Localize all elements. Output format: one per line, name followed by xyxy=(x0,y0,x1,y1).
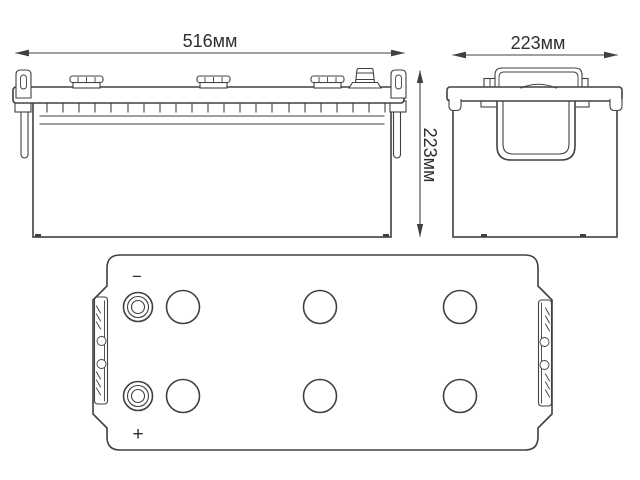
depth-dimension: 223мм xyxy=(452,33,618,58)
battery-lid-side xyxy=(447,87,622,101)
arrow-right-icon xyxy=(604,52,618,59)
arrow-down-icon xyxy=(417,224,423,237)
handle-rod-left xyxy=(21,108,28,158)
top-view: − + xyxy=(93,255,552,450)
battery-technical-drawing: 516мм xyxy=(0,0,640,480)
side-view: 223мм xyxy=(447,33,622,237)
handle-pin xyxy=(540,338,549,347)
vent-cover-strip xyxy=(70,76,103,88)
arrow-right-icon xyxy=(391,50,405,57)
height-dimension: 223мм xyxy=(417,70,440,237)
handle-pin xyxy=(97,337,106,346)
vent-cover-strip xyxy=(197,76,230,88)
vent-cover-strip xyxy=(311,76,344,88)
lid-ear-left xyxy=(449,99,461,111)
carry-handle-side xyxy=(497,100,575,160)
handle-pin xyxy=(540,361,549,370)
handle-rod-right xyxy=(394,108,401,158)
battery-case-front xyxy=(33,100,391,237)
battery-lid-front xyxy=(13,87,404,103)
arrow-left-icon xyxy=(15,50,29,57)
height-dimension-label: 223мм xyxy=(420,128,440,183)
side-depth-dimension-label: 223мм xyxy=(511,33,566,53)
handle-pin xyxy=(97,360,106,369)
terminal-post xyxy=(349,69,381,89)
arrow-left-icon xyxy=(452,52,466,59)
negative-terminal-label: − xyxy=(132,267,142,286)
front-view: 516мм xyxy=(13,31,440,237)
front-width-dimension-label: 516мм xyxy=(183,31,238,51)
carry-handle-left xyxy=(95,297,108,404)
positive-terminal-label: + xyxy=(132,424,143,445)
arrow-up-icon xyxy=(417,70,423,83)
handle-bracket-right xyxy=(391,70,406,98)
handle-bracket-left xyxy=(16,70,31,98)
carry-handle-right xyxy=(539,300,552,406)
width-dimension: 516мм xyxy=(15,31,405,56)
top-view-outline xyxy=(93,255,552,450)
lid-ear-right xyxy=(610,99,622,111)
